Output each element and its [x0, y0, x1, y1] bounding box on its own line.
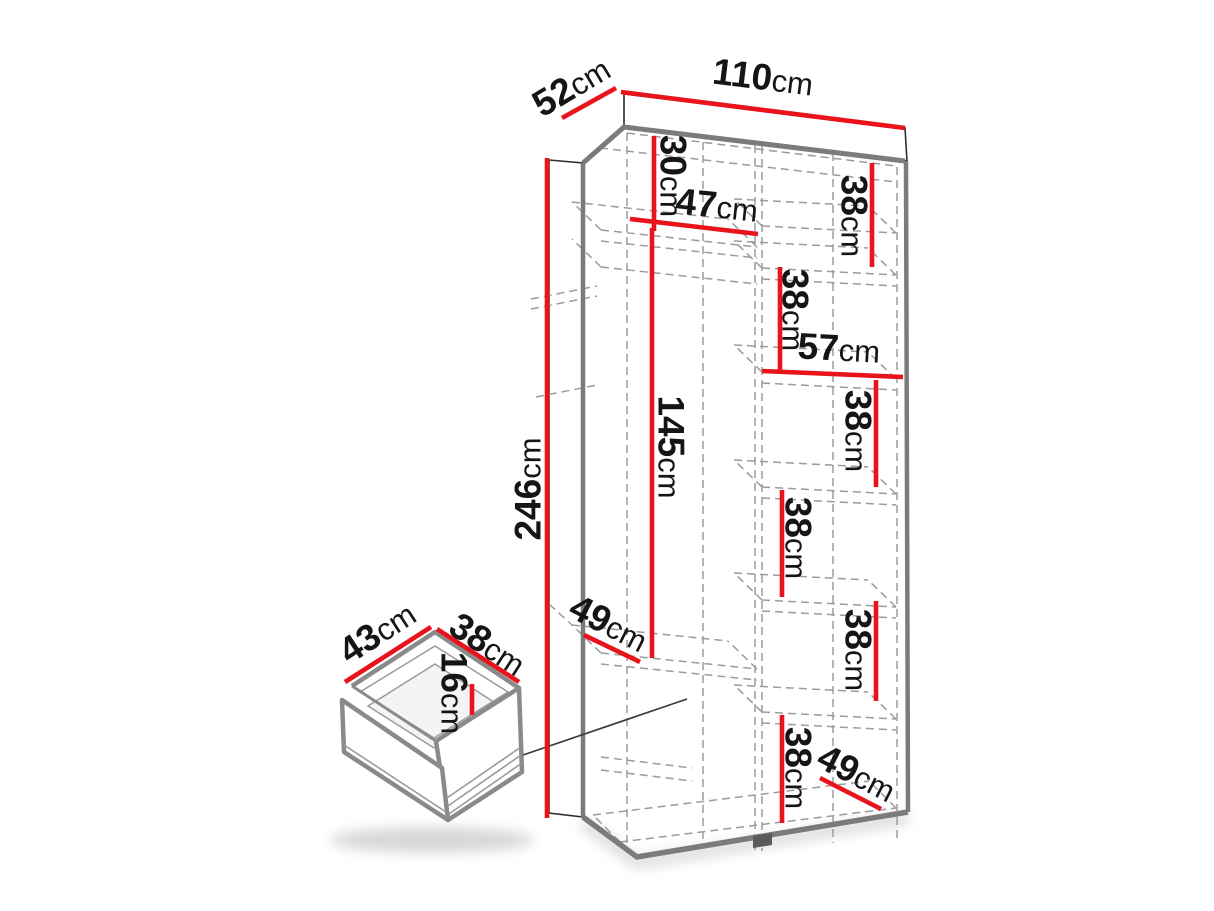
dim-line-right-width-57: [762, 371, 903, 377]
dim-label-gap1: 38cm: [833, 175, 874, 257]
dashed-lower-left-lines: [601, 757, 692, 781]
bottom-front-edge: [583, 812, 908, 857]
wardrobe-diagram: 52cm 110cm 246cm 30cm 47cm 145cm 38cm 38…: [0, 0, 1214, 911]
dim-label-left-width: 47cm: [674, 180, 760, 229]
dim-label-gap5: 38cm: [837, 609, 878, 691]
dim-label-hanging: 145cm: [650, 395, 691, 498]
dim-label-right-width: 57cm: [797, 325, 882, 370]
diagram-canvas: 52cm 110cm 246cm 30cm 47cm 145cm 38cm 38…: [0, 0, 1214, 911]
dim-label-drawer-height: 16cm: [433, 652, 474, 734]
dim-label-gap4: 38cm: [777, 497, 818, 579]
dim-label-height: 246cm: [508, 437, 549, 540]
drawer-shadow: [330, 827, 534, 853]
wardrobe-left-side-panel: [549, 160, 583, 817]
dim-label-gap3: 38cm: [837, 390, 878, 472]
right-front-edge: [906, 161, 908, 812]
dim-label-width: 110cm: [710, 51, 815, 104]
